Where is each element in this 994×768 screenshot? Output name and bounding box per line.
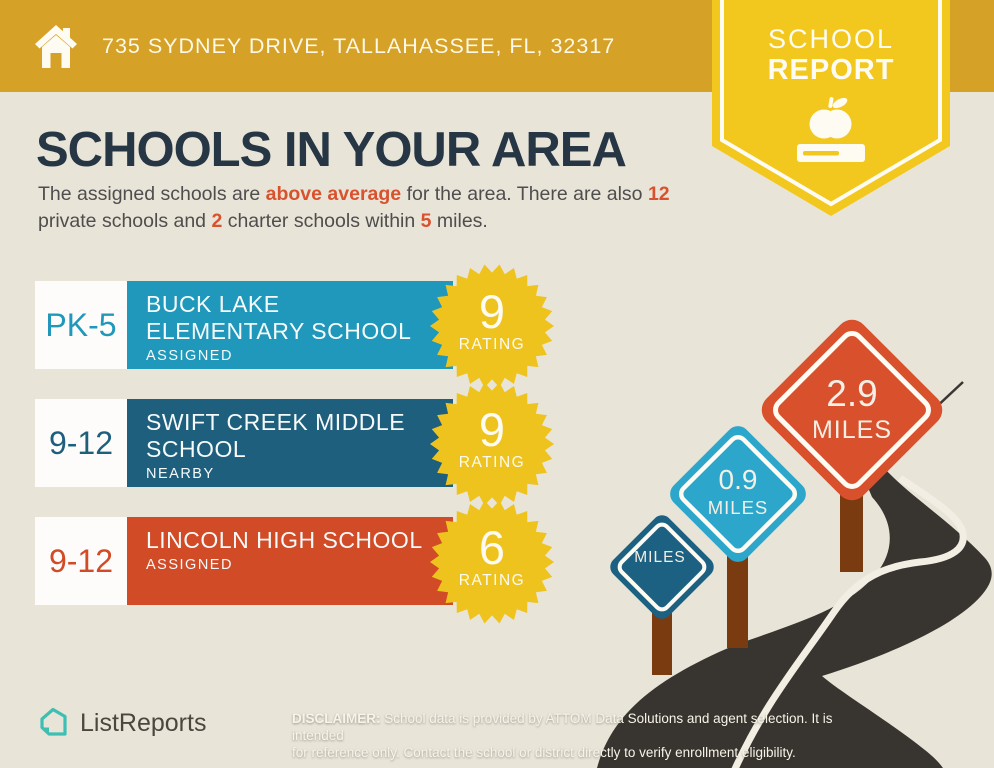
intro-highlight-above-average: above average	[266, 183, 402, 205]
rating-badge: 9 RATING	[430, 382, 554, 506]
page-title: SCHOOLS IN YOUR AREA	[36, 122, 626, 178]
intro-seg4: charter schools within	[222, 210, 420, 232]
intro-seg3: private schools and	[38, 210, 211, 232]
grade-range: 9-12	[49, 543, 113, 580]
school-name-bar: LINCOLN HIGH SCHOOL ASSIGNED	[127, 517, 453, 605]
rating-value: 6	[430, 520, 554, 575]
grade-range-box: 9-12	[35, 517, 127, 605]
listreports-wordmark: ListReports	[80, 709, 206, 738]
property-address: 735 SYDNEY DRIVE, TALLAHASSEE, FL, 32317	[102, 34, 615, 59]
sign-post-medium	[727, 555, 748, 648]
grade-range: PK-5	[45, 307, 116, 344]
school-row-high: 9-12 LINCOLN HIGH SCHOOL ASSIGNED 6 RATI…	[35, 517, 595, 605]
listreports-logo: ListReports	[36, 705, 206, 741]
grade-range-box: PK-5	[35, 281, 127, 369]
sign-medium-unit: MILES	[708, 497, 769, 518]
sign-post-small	[652, 612, 672, 675]
school-row-middle: 9-12 SWIFT CREEK MIDDLE SCHOOL NEARBY 9 …	[35, 399, 595, 487]
grade-range: 9-12	[49, 425, 113, 462]
disclaimer-line2: for reference only. Contact the school o…	[292, 745, 796, 760]
ribbon-title-line1: SCHOOL	[712, 24, 950, 55]
school-report-badge: SCHOOL REPORT	[712, 0, 950, 220]
rating-label: RATING	[430, 454, 554, 472]
rating-value: 9	[430, 402, 554, 457]
school-name-bar: BUCK LAKE ELEMENTARY SCHOOL ASSIGNED	[127, 281, 453, 369]
school-name-line1: SWIFT CREEK MIDDLE	[146, 409, 453, 436]
rating-value: 9	[430, 284, 554, 339]
listreports-house-icon	[36, 705, 71, 741]
sign-large-unit: MILES	[812, 416, 892, 444]
disclaimer-label: DISCLAIMER:	[292, 711, 381, 726]
sign-medium-value: 0.9	[719, 464, 758, 495]
school-status: ASSIGNED	[146, 557, 453, 573]
disclaimer-text: DISCLAIMER: School data is provided by A…	[292, 711, 877, 762]
intro-seg2: for the area. There are also	[401, 183, 648, 205]
school-row-elementary: PK-5 BUCK LAKE ELEMENTARY SCHOOL ASSIGNE…	[35, 281, 595, 369]
intro-seg5: miles.	[432, 210, 488, 232]
sign-large-value: 2.9	[826, 373, 877, 414]
intro-seg1: The assigned schools are	[38, 183, 266, 205]
school-name-line2: ELEMENTARY SCHOOL	[146, 318, 453, 345]
school-name-line1: BUCK LAKE	[146, 291, 453, 318]
intro-highlight-charter-count: 2	[211, 210, 222, 232]
school-name: SWIFT CREEK MIDDLE SCHOOL	[146, 409, 453, 463]
rating-badge: 9 RATING	[430, 264, 554, 388]
ribbon-title-line2: REPORT	[712, 54, 950, 87]
intro-highlight-private-count: 12	[648, 183, 670, 205]
school-name: LINCOLN HIGH SCHOOL	[146, 527, 453, 554]
rating-label: RATING	[430, 572, 554, 590]
intro-highlight-miles: 5	[421, 210, 432, 232]
school-name-line1: LINCOLN HIGH SCHOOL	[146, 527, 453, 554]
home-icon	[34, 23, 78, 69]
school-name: BUCK LAKE ELEMENTARY SCHOOL	[146, 291, 453, 345]
school-name-bar: SWIFT CREEK MIDDLE SCHOOL NEARBY	[127, 399, 453, 487]
sign-small-unit: MILES	[634, 549, 686, 566]
intro-paragraph: The assigned schools are above average f…	[38, 181, 693, 234]
school-name-line2: SCHOOL	[146, 436, 453, 463]
apple-on-book-icon	[786, 96, 876, 168]
grade-range-box: 9-12	[35, 399, 127, 487]
school-status: ASSIGNED	[146, 348, 453, 364]
school-status: NEARBY	[146, 466, 453, 482]
rating-badge: 6 RATING	[430, 500, 554, 624]
rating-label: RATING	[430, 336, 554, 354]
